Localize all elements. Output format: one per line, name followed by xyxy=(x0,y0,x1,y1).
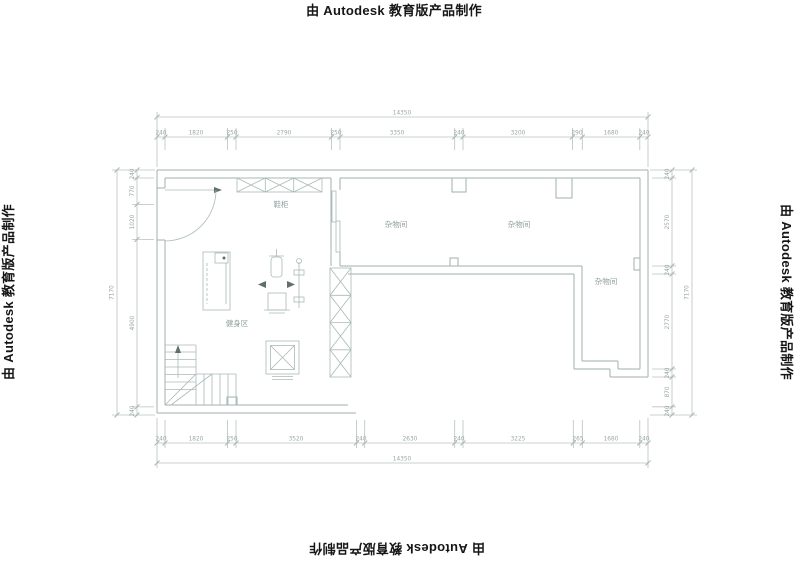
gym-post xyxy=(271,257,282,277)
dim-label: 240 xyxy=(638,437,649,443)
stair-treads xyxy=(165,345,236,405)
dim-label: 1680 xyxy=(604,437,619,443)
dim-label: 3225 xyxy=(511,437,526,443)
door-swing-arrowhead xyxy=(214,187,222,193)
elevator-shaft xyxy=(266,341,299,380)
dim-label: 1680 xyxy=(604,131,619,137)
room-label-storage-mid: 杂物间 xyxy=(508,219,531,229)
dim-label: 240 xyxy=(130,405,136,416)
entry-door xyxy=(165,187,222,241)
dimensions-bottom: 14350 240 1820 250 3520 240 2630 240 322… xyxy=(155,418,651,468)
dim-label: 240 xyxy=(638,131,649,137)
room-label-shoe-cabinet: 鞋柜 xyxy=(274,199,289,209)
dim-label: 870 xyxy=(665,386,671,397)
dim-label: 240 xyxy=(453,437,464,443)
shaft-sill xyxy=(272,377,293,380)
room-label-storage-left: 杂物间 xyxy=(385,219,408,229)
dim-label: 240 xyxy=(130,168,136,179)
dim-label: 2570 xyxy=(665,214,671,229)
wall-column-pocket xyxy=(452,178,466,192)
dim-label: 240 xyxy=(355,437,366,443)
wall-column-pocket xyxy=(634,258,640,270)
wall-pier-stub xyxy=(227,397,237,405)
dim-label: 2790 xyxy=(277,131,292,137)
dimensions-left: 7170 240 770 1020 4900 240 xyxy=(110,168,156,418)
room-label-storage-right: 杂物间 xyxy=(595,276,618,286)
dim-total-top: 14350 xyxy=(393,111,412,117)
dim-label: 240 xyxy=(665,264,671,275)
stair-direction-arrow xyxy=(175,345,181,353)
floorplan-canvas: 14350 240 1820 250 2790 250 3350 240 320… xyxy=(0,0,800,565)
wall-pier-stub xyxy=(450,258,458,266)
dim-label: 240 xyxy=(155,131,166,137)
staircase xyxy=(165,345,236,405)
dim-total-left: 7170 xyxy=(110,285,116,300)
dim-lines xyxy=(117,170,137,415)
gym-seat xyxy=(268,293,286,310)
treadmill-console xyxy=(215,253,228,263)
gym-cap xyxy=(269,249,284,256)
dim-label: 2770 xyxy=(665,314,671,329)
dim-label: 1020 xyxy=(130,214,136,229)
gym-arrow-left xyxy=(258,281,266,288)
gym-arrow-right xyxy=(287,281,295,288)
cabinet-hatch xyxy=(330,268,351,377)
shoe-cabinet xyxy=(237,178,322,192)
dimensions-top: 14350 240 1820 250 2790 250 3350 240 320… xyxy=(155,111,651,168)
dim-label: 3200 xyxy=(511,131,526,137)
dim-label: 250 xyxy=(330,131,341,137)
dimensions-right: 7170 240 2570 240 2770 240 870 240 xyxy=(650,168,697,418)
dim-label: 2630 xyxy=(403,437,418,443)
dim-label: 4900 xyxy=(130,315,136,330)
wall-column-pocket xyxy=(556,178,572,198)
dim-ticks xyxy=(115,168,140,418)
dim-total-bottom: 14350 xyxy=(393,457,412,463)
dim-label: 1820 xyxy=(189,437,204,443)
dim-extension-lines xyxy=(157,112,648,167)
shaft-cross xyxy=(271,346,295,370)
dim-label: 240 xyxy=(665,367,671,378)
dim-label: 250 xyxy=(226,131,237,137)
walls xyxy=(157,170,648,413)
tall-cabinet xyxy=(330,268,351,377)
dim-label: 240 xyxy=(155,437,166,443)
multi-gym-machine xyxy=(258,249,304,313)
dim-label: 3350 xyxy=(390,131,405,137)
dim-label: 3520 xyxy=(289,437,304,443)
wall-outline xyxy=(157,170,648,413)
door-swing-arc xyxy=(165,190,216,241)
room-label-fitness: 健身区 xyxy=(226,318,249,328)
dim-label: 240 xyxy=(453,131,464,137)
dim-label: 250 xyxy=(226,437,237,443)
dim-label: 1820 xyxy=(189,131,204,137)
gym-base xyxy=(264,310,290,313)
cabinet-hatch xyxy=(237,178,322,192)
dim-label: 290 xyxy=(571,131,582,137)
room-labels: 鞋柜 杂物间 杂物间 杂物间 健身区 xyxy=(226,199,618,328)
dim-label: 240 xyxy=(665,168,671,179)
sliding-door-panel xyxy=(332,191,336,222)
dim-total-right: 7170 xyxy=(685,285,691,300)
treadmill xyxy=(203,252,230,310)
sliding-door-panel xyxy=(336,221,340,252)
dim-label: 770 xyxy=(130,185,136,196)
dim-extension-lines xyxy=(112,170,155,415)
dim-label: 240 xyxy=(665,405,671,416)
dim-label: 265 xyxy=(572,437,583,443)
dim-ticks xyxy=(670,168,695,418)
treadmill-dial xyxy=(223,257,226,260)
